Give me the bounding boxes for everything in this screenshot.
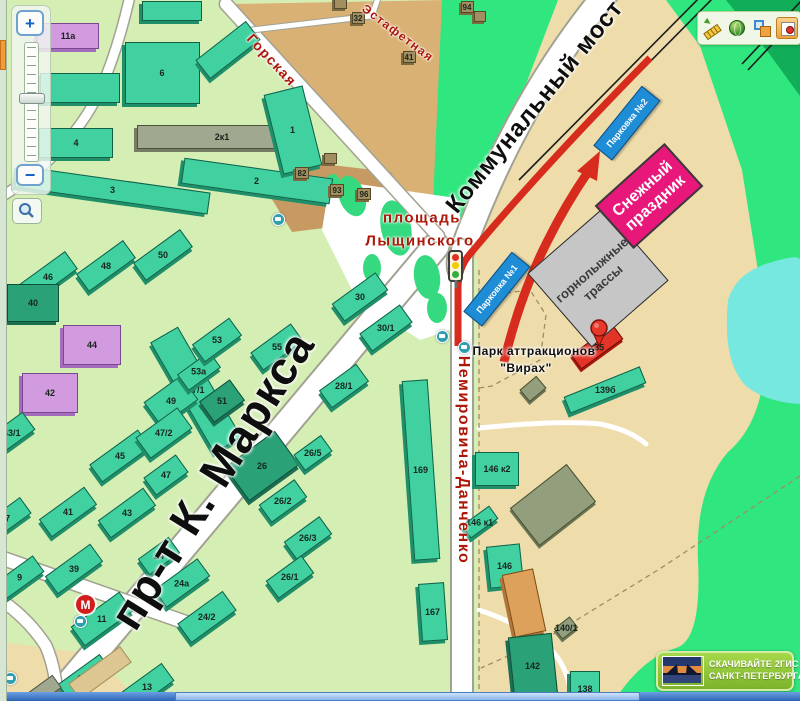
street-label: площадь — [383, 210, 461, 227]
building: 26/1 — [266, 555, 315, 599]
side-panel-tab[interactable] — [0, 40, 6, 70]
building: 96 — [357, 188, 371, 200]
building: 44 — [63, 325, 121, 365]
building: 146 к2 — [475, 452, 519, 486]
building: 140/1 — [554, 616, 578, 639]
building: 50 — [133, 229, 193, 281]
street-label: Эстафетная — [359, 1, 436, 64]
building: 82 — [295, 167, 309, 179]
building — [474, 11, 486, 22]
zoom-slider-track[interactable] — [24, 42, 39, 162]
metro-station-icon[interactable]: М — [76, 595, 95, 614]
building: 26/3 — [284, 516, 333, 560]
building: 26/5 — [293, 435, 332, 471]
horizontal-scrollbar[interactable] — [0, 692, 800, 701]
street-label: Коммунальный мост — [441, 0, 630, 219]
parking-label: Парковка №2 — [593, 85, 660, 160]
scrollbar-thumb[interactable] — [175, 692, 640, 701]
building: 94 — [461, 1, 474, 13]
building — [40, 73, 120, 103]
zoom-slider-handle[interactable] — [19, 93, 45, 104]
bridge-photo — [662, 656, 704, 686]
zoom-control: + − — [11, 5, 51, 195]
building: 30 — [332, 272, 389, 322]
ruler-glyph — [703, 24, 722, 40]
building: 142 — [508, 633, 558, 699]
map-toolbar — [697, 11, 800, 45]
map-features-layer: 11а4362к12146485040444247/1454947/24753а… — [0, 0, 800, 701]
building: 30/1 — [359, 304, 412, 351]
layers-icon[interactable] — [751, 17, 773, 39]
marker-tool-icon[interactable] — [776, 17, 798, 39]
building: 41 — [39, 487, 97, 538]
tree-area — [427, 293, 447, 323]
building: 40 — [7, 284, 59, 322]
bus-stop-icon[interactable] — [272, 213, 285, 226]
traffic-light-red — [452, 254, 459, 261]
traffic-light-green — [452, 271, 459, 278]
bus-stop-icon[interactable] — [458, 341, 471, 354]
badge-line2: САНКТ-ПЕТЕРБУРГА — [709, 671, 800, 683]
building — [519, 376, 546, 402]
building: 42 — [22, 373, 78, 413]
building: 39 — [45, 544, 103, 595]
street-label: Немировича-Данченко — [454, 356, 472, 565]
building: 93 — [330, 184, 344, 196]
street-label: "Вирах" — [500, 361, 552, 375]
traffic-light-yellow — [452, 262, 459, 269]
building: 167 — [418, 582, 448, 642]
globe-icon[interactable] — [726, 17, 748, 39]
globe-glyph — [729, 20, 745, 36]
magnifier-icon — [17, 201, 37, 221]
map-canvas[interactable]: 11а4362к12146485040444247/1454947/24753а… — [0, 0, 800, 701]
building — [324, 153, 337, 164]
zoom-in-button[interactable]: + — [16, 10, 44, 36]
street-label: Горская — [244, 31, 300, 90]
building — [502, 568, 547, 637]
traffic-light-icon — [448, 250, 463, 282]
building: 169 — [402, 379, 440, 560]
ruler-arrow-glyph — [704, 18, 712, 26]
building: 6 — [125, 42, 200, 104]
badge-line1: СКАЧИВАЙТЕ 2ГИС — [709, 659, 800, 671]
ruler-icon[interactable] — [701, 17, 723, 39]
building: 24/2 — [177, 591, 236, 643]
building — [510, 464, 596, 546]
building: 53 — [192, 318, 242, 363]
building: 139б — [564, 366, 647, 413]
street-label: Лыщинского — [365, 233, 474, 250]
bus-stop-icon[interactable] — [436, 330, 449, 343]
parking-label: Парковка №1 — [463, 251, 530, 326]
building: 1 — [264, 85, 323, 174]
building — [142, 1, 202, 21]
bus-stop-icon[interactable] — [74, 615, 87, 628]
magnifier-zoom-button[interactable] — [12, 198, 42, 224]
location-marker-icon[interactable] — [586, 316, 612, 348]
building: 28/1 — [319, 364, 369, 409]
street-label: Парк аттракционов — [473, 344, 596, 358]
building: 48 — [76, 240, 136, 292]
zoom-out-button[interactable]: − — [16, 164, 44, 186]
layers-front-glyph — [760, 26, 771, 37]
building — [334, 0, 347, 9]
window-edge — [0, 0, 7, 701]
download-2gis-badge[interactable]: СКАЧИВАЙТЕ 2ГИС САНКТ-ПЕТЕРБУРГА — [656, 651, 794, 691]
marker-pin-glyph — [786, 26, 794, 34]
